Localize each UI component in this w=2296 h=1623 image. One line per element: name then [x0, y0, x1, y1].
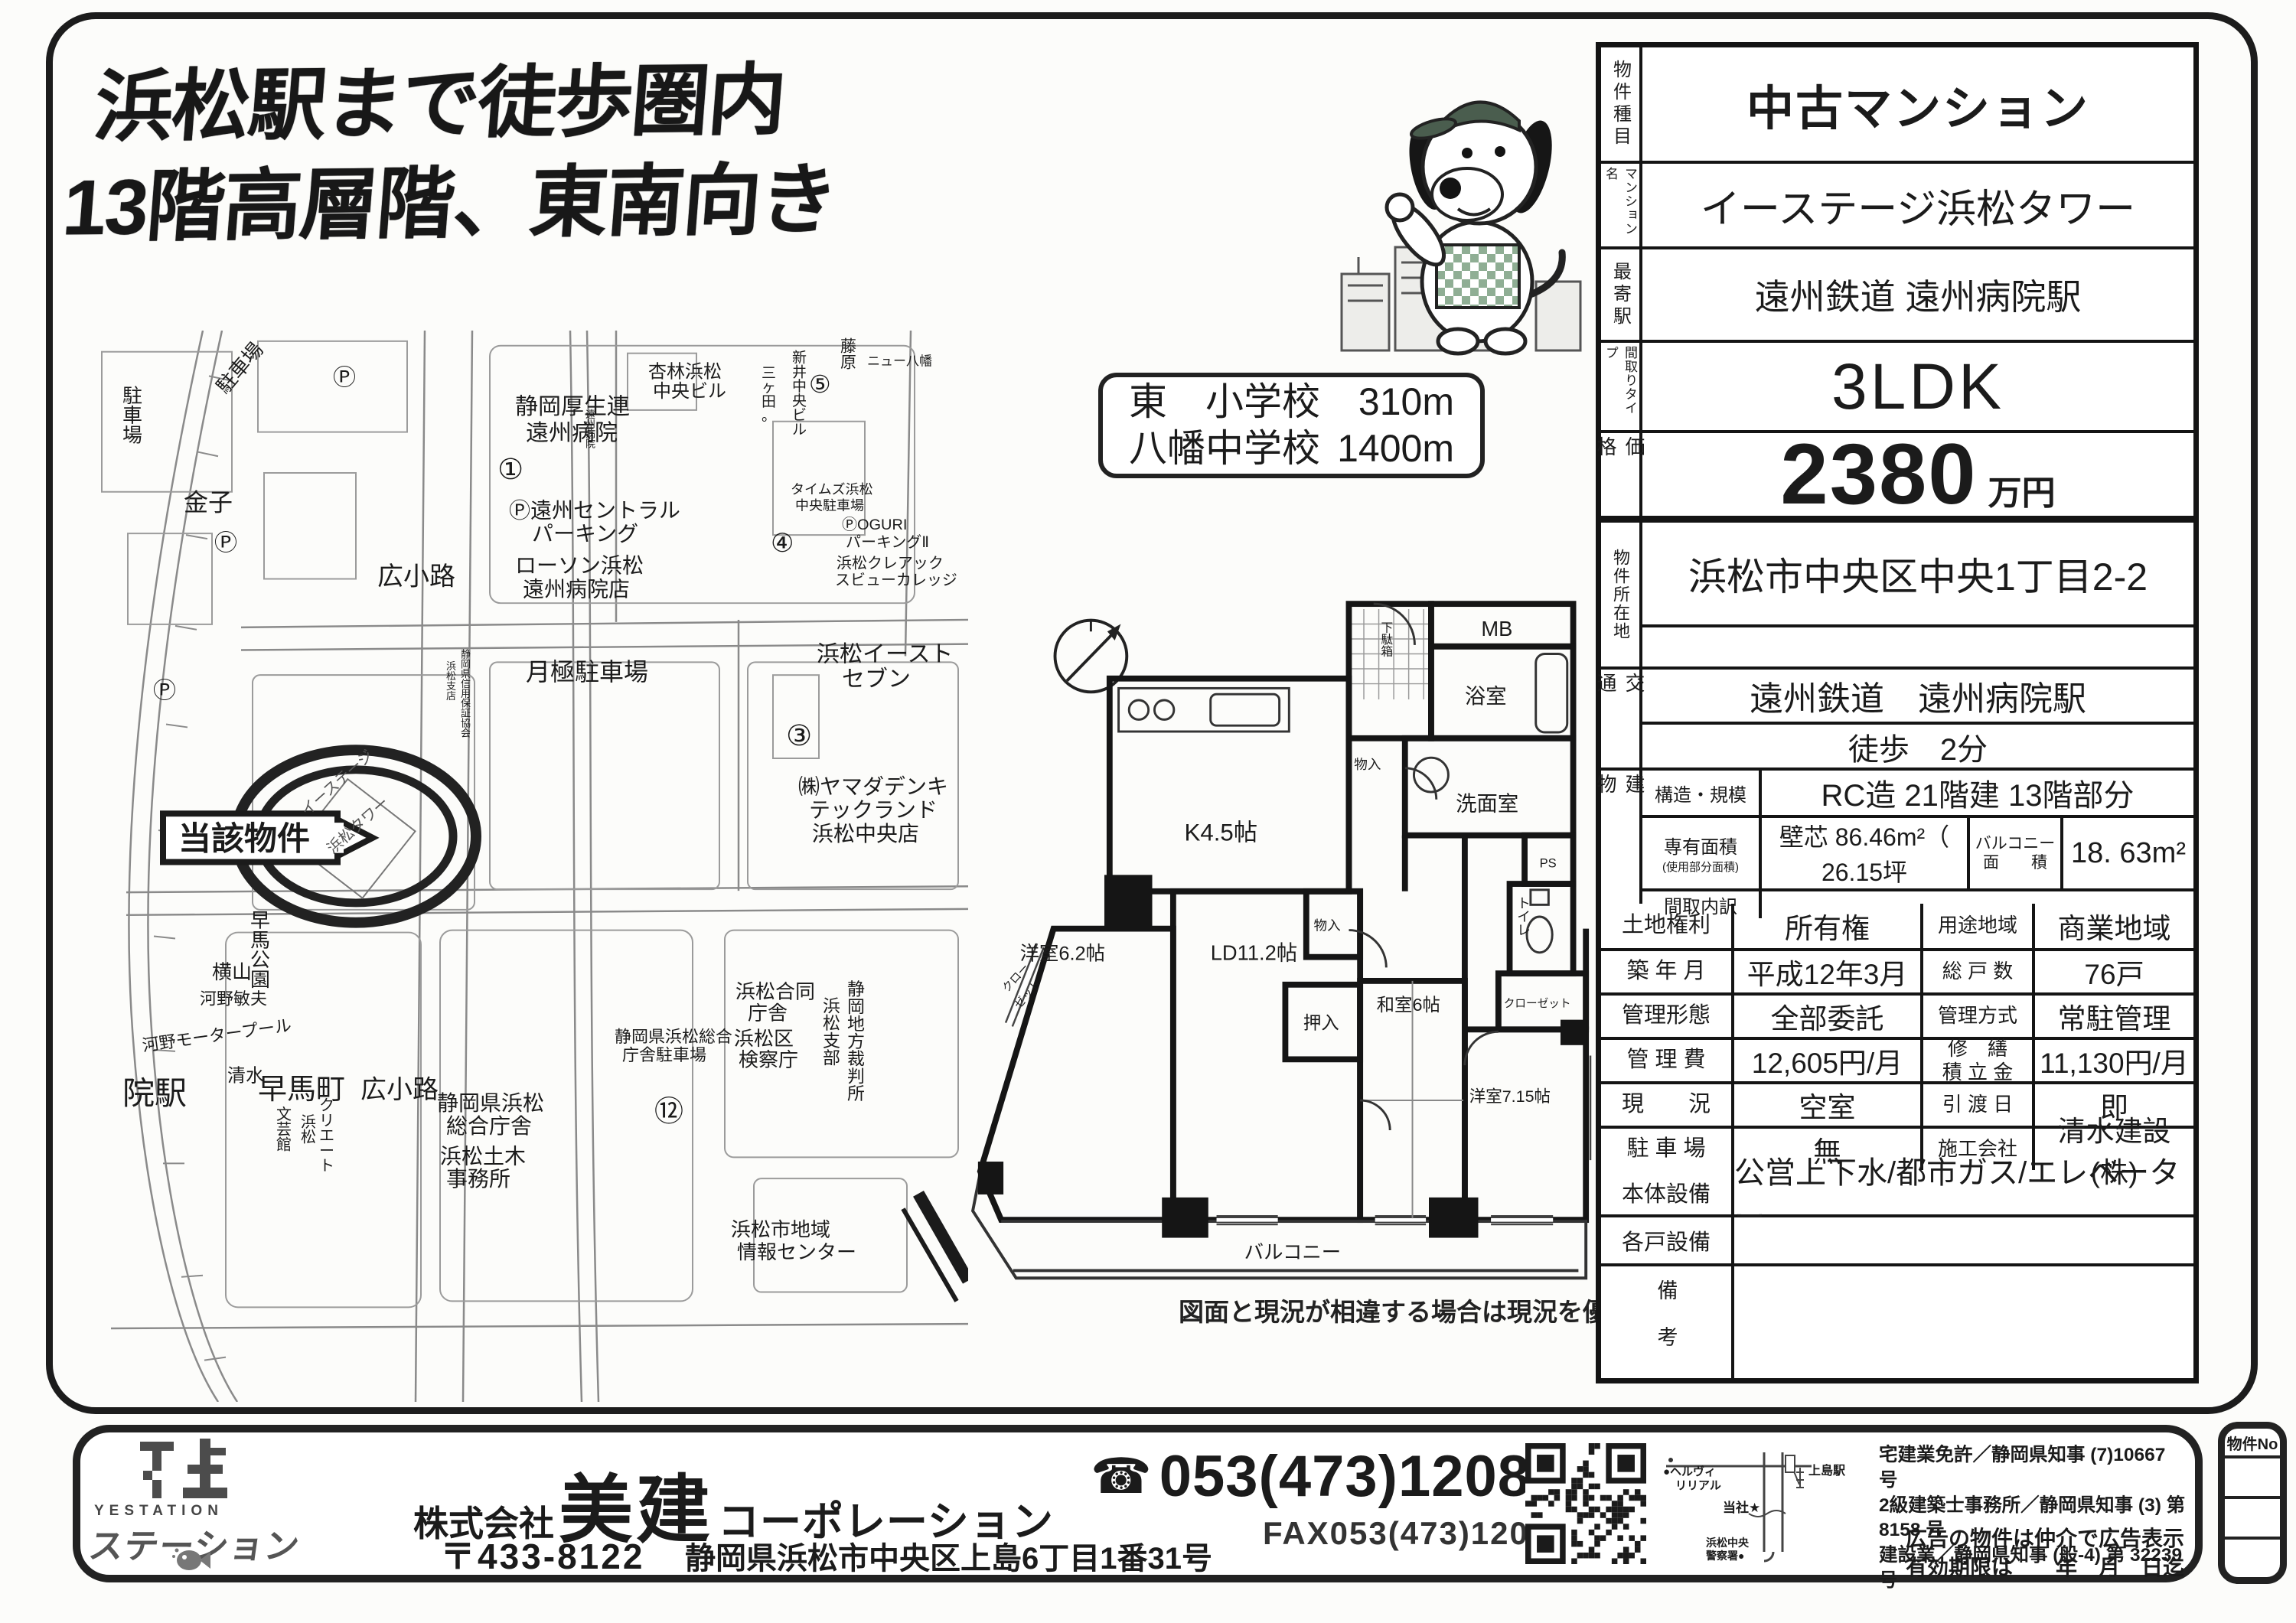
map-label: 中央ビル [653, 381, 726, 402]
map-label: ニュー八幡 [867, 354, 932, 369]
dog-mascot-illustration [1336, 52, 1588, 358]
spec-row-access: 交通 遠州鉄道 遠州病院駅 徒歩 2分 [1601, 666, 2193, 768]
row-label: 交通 [1601, 670, 1642, 768]
map-label: ① [497, 454, 523, 486]
map-label: 駐車場 [212, 338, 267, 398]
grid-value: 12,605円/月 [1734, 1040, 1923, 1081]
tatami-lines [1362, 981, 1463, 1218]
minimap-station: 上島駅 [1808, 1460, 1845, 1478]
price-unit: 万円 [1988, 465, 2056, 514]
map-label: パーキング [532, 522, 638, 546]
minimap-landmark: リリアル [1675, 1477, 1721, 1493]
row-label: 物件所在地 [1601, 523, 1642, 666]
balcony-value: 18. 63m² [2063, 818, 2193, 888]
minimap-police: 警察署● [1706, 1548, 1744, 1563]
headline-line1: 浜松駅まで徒歩圏内 [92, 50, 848, 158]
map-label: ③ [786, 720, 812, 752]
neighborhood-map: 駐車場駐車場金子ⓅⓅⓅ静岡厚生連遠州病院①遠州病院Ⓟ遠州セントラルパーキングロー… [80, 331, 968, 1402]
wide-row-value: 公営上下水/都市ガス/エレベーター [1734, 1170, 2193, 1214]
map-label: 三ヶ田。 [762, 365, 776, 424]
access-walk: 徒歩 2分 [1642, 725, 2193, 769]
grid-label: 駐 車 場 [1601, 1129, 1734, 1170]
telephone-number: 053(473)1208 [1159, 1443, 1531, 1510]
school-distance: 310m [1358, 379, 1454, 425]
wide-row-label: 各戸設備 [1601, 1217, 1734, 1263]
grid-value: 商業地域 [2035, 904, 2193, 948]
property-type-value: 中古マンション [1642, 47, 2193, 161]
property-no-cell [2225, 1455, 2280, 1496]
building-area-row: 専有面積 (使用部分面積) 壁芯 86.46m²（ 26.15坪 バルコニー 面… [1642, 815, 2193, 888]
price-value: 2380 万円 [1642, 433, 2193, 516]
postal-code: 〒433-8122 [440, 1529, 644, 1579]
map-label: 浜松クレアック [837, 556, 944, 572]
footer-bar: YESTATION ステーション 株式会社 美建 コーポレーション 〒433-8… [73, 1425, 2203, 1582]
floorplan-label: 洋室6.2帖 [1020, 943, 1105, 965]
spec-grid-row: 土地権利所有権用途地域商業地域 [1601, 904, 2193, 948]
washbasin-icon [1414, 758, 1448, 792]
map-label: テックランド [809, 798, 938, 822]
notice-line1: 広告の物件は仲介で広告表示 [1906, 1524, 2184, 1553]
school-row-elementary: 東 小学校 310m [1129, 379, 1454, 425]
map-label: 静岡地方裁判所 [847, 979, 865, 1103]
map-label: 駐車場 [122, 385, 142, 446]
grid-label: 引 渡 日 [1923, 1084, 2035, 1126]
wide-row-label: 本体設備 [1601, 1170, 1734, 1214]
floorplan-label: 押入 [1303, 1012, 1339, 1032]
phone-icon: ☎ [1091, 1448, 1152, 1505]
spec-row-nearest-station: 最寄駅 遠州鉄道 遠州病院駅 [1601, 246, 2193, 340]
map-label: 静岡県浜松総合 [615, 1027, 732, 1046]
map-label: ④ [771, 529, 794, 558]
map-label: 浜松合同 [735, 981, 815, 1003]
windows [1009, 945, 1553, 1220]
map-label: Ⓟ [214, 530, 237, 556]
map-label: 中央駐車場 [795, 498, 864, 513]
map-label: ローソン浜松 [515, 554, 644, 578]
grid-label: 管 理 費 [1601, 1040, 1734, 1081]
spec-grid-row: 築 年 月平成12年3月総 戸 数76戸 [1601, 948, 2193, 992]
spec-wide-row: 本体設備公営上下水/都市ガス/エレベーター [1601, 1170, 2193, 1214]
grid-label: 管理形態 [1601, 996, 1734, 1037]
map-label: 広小路 [377, 562, 455, 592]
grid-value: 所有権 [1734, 904, 1923, 948]
floorplan-label: LD11.2帖 [1211, 941, 1298, 965]
spec-wide-row: 各戸設備 [1601, 1214, 2193, 1263]
structure-value: RC造 21階建 13階部分 [1762, 771, 2193, 815]
floorplan-label: K4.5帖 [1185, 819, 1258, 846]
map-label: 横山 [212, 961, 252, 983]
grid-label: 築 年 月 [1601, 951, 1734, 992]
school-name: 八幡中学校 [1129, 425, 1320, 472]
grid-label: 修 繕 積 立 金 [1923, 1040, 2035, 1081]
school-name: 東 小学校 [1129, 379, 1320, 425]
access-line1: 遠州鉄道 遠州病院駅 [1642, 670, 2193, 722]
spec-wide-row: 備考 [1601, 1263, 2193, 1378]
spec-table: 物件種目 中古マンション マンション名 イーステージ浜松タワー 最寄駅 遠州鉄道… [1596, 42, 2199, 1383]
map-label: Ⓟ遠州セントラル [509, 499, 680, 523]
floorplan-label: 和室6帖 [1377, 995, 1440, 1015]
row-label: 価格 [1601, 433, 1642, 516]
bathtub-icon [1536, 654, 1567, 732]
floorplan-label: バルコニー [1244, 1242, 1341, 1263]
area-label-sub: (使用部分面積) [1662, 859, 1739, 875]
floorplan-label: 物入 [1314, 918, 1341, 934]
map-label: 静岡県信用保証協会 [461, 648, 471, 738]
layout-type-value: 3LDK [1642, 343, 2193, 430]
grid-label: 土地権利 [1601, 904, 1734, 948]
property-no-box: 物件No [2218, 1422, 2287, 1584]
map-label: 遠州病院店 [523, 577, 630, 601]
license-line: 宅建業免許／静岡県知事 (7)10667 号 [1879, 1443, 2189, 1494]
wide-row-value [1734, 1217, 2193, 1263]
property-no-label: 物件No [2225, 1429, 2280, 1455]
map-label: 河野モータープール [141, 1015, 292, 1055]
nearest-station-value: 遠州鉄道 遠州病院駅 [1642, 249, 2193, 340]
map-label: 浜松区 [734, 1028, 794, 1050]
map-label: パーキングⅡ [846, 534, 929, 551]
property-arrow-text: 当該物件 [178, 821, 310, 858]
notice-line2: 有効期限は 年 月 日迄 [1906, 1553, 2184, 1582]
map-label: 静岡県浜松 [437, 1091, 544, 1115]
map-label: 院駅 [122, 1075, 187, 1111]
spec-wide-rows: 本体設備公営上下水/都市ガス/エレベーター各戸設備備考 [1601, 1170, 2193, 1378]
building-structure-row: 構造・規模 RC造 21階建 13階部分 [1642, 771, 2193, 815]
grid-label: 総 戸 数 [1923, 951, 2035, 992]
map-label: 浜松支部 [823, 996, 840, 1068]
floorplan-label: PS [1540, 856, 1557, 871]
mansion-name-value: イーステージ浜松タワー [1642, 164, 2193, 246]
yestation-logo-icon [126, 1437, 256, 1503]
floorplan-label: 物入 [1354, 757, 1381, 772]
balcony-label: バルコニー 面 積 [1970, 818, 2063, 888]
floorplan-label: クローゼット [1504, 997, 1571, 1010]
map-label: タイムズ浜松 [791, 482, 873, 497]
map-label: スビューカレッジ [835, 572, 957, 589]
floorplan-label: 浴室 [1465, 684, 1507, 708]
grid-value: 11,130円/月 [2035, 1040, 2193, 1081]
spec-block-building: 建物 構造・規模 RC造 21階建 13階部分 専有面積 (使用部分面積) 壁芯… [1601, 768, 2193, 904]
map-label: 浜松イースト [817, 642, 953, 667]
map-label: 遠州病院 [585, 409, 595, 450]
minimap-our-office: 当社★ [1723, 1497, 1760, 1516]
area-label: 専有面積 [1664, 832, 1737, 859]
map-label: 文芸館 [276, 1106, 292, 1153]
map-label: 浜松市地域 [731, 1218, 830, 1240]
map-label: 広小路 [360, 1075, 439, 1104]
headline-line2: 13階高層階、東南向き [59, 149, 840, 257]
location-value: 浜松市中央区中央1丁目2-2 [1642, 523, 2193, 624]
headline: 浜松駅まで徒歩圏内 13階高層階、東南向き [84, 50, 848, 257]
property-no-cell [2225, 1537, 2280, 1577]
map-label: 情報センター [737, 1241, 856, 1263]
route-minimap: ●ヘルヴィ リリアル 当社★ 浜松中央 警察署● 上島駅 [1658, 1437, 1873, 1578]
grid-label: 現 況 [1601, 1084, 1734, 1126]
floorplan-label: 下駄箱 [1381, 621, 1393, 658]
map-label: ㈱ヤマダデンキ [798, 775, 948, 799]
school-distance-box: 東 小学校 310m 八幡中学校 1400m [1098, 373, 1485, 478]
qr-code [1525, 1443, 1646, 1564]
map-label: 新井中央ビル [792, 350, 807, 438]
map-label: 浜松土木 [440, 1144, 526, 1168]
ad-notice: 広告の物件は仲介で広告表示 有効期限は 年 月 日迄 [1906, 1524, 2184, 1582]
sub-label: 専有面積 (使用部分面積) [1642, 818, 1762, 888]
map-label: 浜松中央店 [812, 822, 919, 846]
map-label: クリエート [319, 1097, 334, 1175]
logo-text-en: YESTATION [94, 1503, 223, 1520]
wide-row-label: 備考 [1601, 1266, 1734, 1378]
grid-value: 空室 [1734, 1084, 1923, 1126]
flyer-page: 浜松駅まで徒歩圏内 13階高層階、東南向き [0, 0, 2296, 1623]
map-label: セブン [842, 666, 911, 692]
map-label: 早馬公園 [250, 911, 270, 991]
grid-label: 管理方式 [1923, 996, 2035, 1037]
row-label: 物件種目 [1601, 47, 1642, 161]
fish-mascot-icon [171, 1546, 210, 1575]
floorplan-label: 洗面室 [1456, 791, 1518, 815]
school-row-junior-high: 八幡中学校 1400m [1129, 425, 1454, 472]
spec-row-property-type: 物件種目 中古マンション [1601, 47, 2193, 161]
map-label: 検察庁 [739, 1049, 798, 1071]
property-no-cell [2225, 1496, 2280, 1537]
spec-grid-row: 管 理 費12,605円/月修 繕 積 立 金11,130円/月 [1601, 1037, 2193, 1081]
location-value-2 [1642, 627, 2193, 666]
spec-grid-rows: 土地権利所有権用途地域商業地域築 年 月平成12年3月総 戸 数76戸管理形態全… [1601, 904, 2193, 1170]
grid-value: 全部委託 [1734, 996, 1923, 1037]
grid-value: 76戸 [2035, 951, 2193, 992]
company-address: 静岡県浜松市中央区上島6丁目1番31号 [685, 1533, 1212, 1578]
row-label: 間取りタイプ [1601, 343, 1642, 430]
grid-value: 常駐管理 [2035, 996, 2193, 1037]
spec-row-mansion-name: マンション名 イーステージ浜松タワー [1601, 161, 2193, 246]
map-label: 浜松支店 [446, 660, 456, 702]
spec-row-price: 価格 2380 万円 [1601, 430, 2193, 516]
wide-row-value [1734, 1266, 2193, 1378]
map-label: 静岡厚生連 [515, 394, 630, 419]
price-number: 2380 [1780, 432, 1977, 517]
row-label: マンション名 [1601, 164, 1642, 246]
floorplan-label: 洋室7.15帖 [1469, 1087, 1551, 1106]
route-minimap-drawing [1658, 1437, 1873, 1578]
map-label: 藤原 [840, 338, 856, 372]
toilet-icon [1527, 890, 1552, 953]
floorplan-label: MB [1481, 617, 1512, 640]
grid-value: 平成12年3月 [1734, 951, 1923, 992]
spec-grid-row: 管理形態全部委託管理方式常駐管理 [1601, 992, 2193, 1037]
map-label: 庁舎 [748, 1002, 788, 1024]
map-label: 遠州病院 [526, 421, 618, 446]
grid-label: 用途地域 [1923, 904, 2035, 948]
map-label: 事務所 [446, 1167, 510, 1191]
map-label: 浜松 [301, 1114, 316, 1146]
kitchen-fixtures [1119, 688, 1290, 732]
floorplan-label: トイレ [1517, 895, 1531, 937]
map-label: 杏林浜松 [648, 361, 722, 382]
map-label: 庁舎駐車場 [622, 1045, 706, 1064]
map-label: 金子 [184, 489, 233, 517]
area-value: 壁芯 86.46m²（ 26.15坪 [1762, 818, 1970, 888]
map-label: Ⓟ [153, 678, 176, 703]
map-label: 総合庁舎 [446, 1114, 532, 1138]
map-label: ⑤ [809, 370, 831, 398]
spec-row-location: 物件所在地 浜松市中央区中央1丁目2-2 [1601, 516, 2193, 666]
map-label: Ⓟ [333, 365, 356, 390]
row-label: 建物 [1601, 771, 1642, 904]
floor-plan: MB浴室下駄箱洗面室K4.5帖物入物入PSトイレクローゼット押入洋室6.2帖LD… [941, 578, 1592, 1286]
school-distance: 1400m [1337, 425, 1454, 472]
spec-row-layout-type: 間取りタイプ 3LDK [1601, 340, 2193, 430]
telephone-line: ☎ 053(473)1208 [1091, 1443, 1531, 1510]
map-label: 河野敏夫 [200, 989, 267, 1009]
fax-number: FAX053(473)1209 [1263, 1515, 1548, 1552]
row-label: 最寄駅 [1601, 249, 1642, 340]
sub-label: 構造・規模 [1642, 771, 1762, 815]
map-label: ⓅOGURI [842, 517, 907, 533]
map-label: 月極駐車場 [526, 658, 648, 686]
map-label: ⑫ [654, 1096, 683, 1128]
